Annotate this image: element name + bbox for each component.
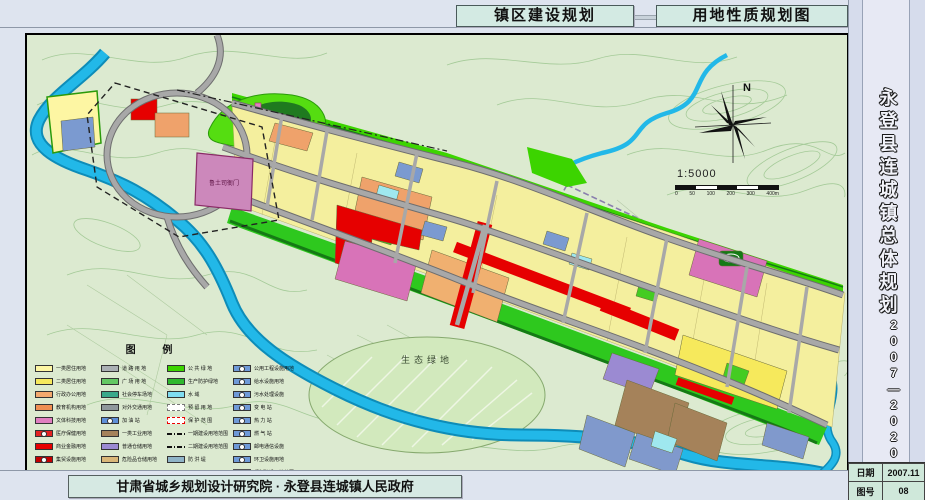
scale-tick: 50 bbox=[689, 191, 695, 197]
sheet-number-value: 08 bbox=[882, 482, 925, 500]
legend-swatch bbox=[35, 365, 53, 372]
legend-item: 邮电通信设施 bbox=[233, 440, 298, 453]
legend-swatch-symbol bbox=[239, 457, 245, 463]
scale-bar-ticks: 050100200300400m bbox=[675, 191, 779, 197]
legend-item-label: 生产防护绿地 bbox=[188, 378, 218, 385]
legend-item: 水 域 bbox=[167, 388, 232, 401]
legend-item-label: 二期建设用地范围 bbox=[188, 443, 228, 450]
legend-item: 给水设施用地 bbox=[233, 375, 298, 388]
legend-swatch-symbol bbox=[239, 366, 245, 372]
legend-item: 道 路 用 地 bbox=[101, 362, 166, 375]
legend-item-label: 燃 气 站 bbox=[254, 430, 272, 437]
sidebar: 永登县连城镇总体规划 2007—2020 bbox=[848, 0, 925, 500]
legend-item: 一类居住用地 bbox=[35, 362, 100, 375]
legend-item-label: 文体科技用地 bbox=[56, 417, 86, 424]
legend-item-label: 广 场 用 地 bbox=[122, 378, 146, 385]
legend-swatch bbox=[233, 456, 251, 463]
legend-swatch bbox=[35, 391, 53, 398]
legend-column: 一类居住用地二类居住用地行政办公用地教育机构用地文体科技用地医疗保健用地商业金融… bbox=[35, 362, 100, 479]
scale-tick: 100 bbox=[707, 191, 715, 197]
legend-item-label: 环卫设施用地 bbox=[254, 456, 284, 463]
scale-bar-segments bbox=[675, 185, 779, 190]
legend-item-label: 水 域 bbox=[188, 391, 199, 398]
legend-swatch bbox=[167, 404, 185, 411]
legend-swatch-symbol bbox=[41, 431, 47, 437]
legend-item-label: 预 留 用 地 bbox=[188, 404, 212, 411]
legend-swatch-symbol bbox=[239, 392, 245, 398]
plan-years: 2007—2020 bbox=[887, 318, 901, 462]
legend-swatch-symbol bbox=[239, 379, 245, 385]
legend-item: 预 留 用 地 bbox=[167, 401, 232, 414]
legend-item: 对外交通用地 bbox=[101, 401, 166, 414]
date-label: 日期 bbox=[848, 463, 882, 482]
legend-item: 二类居住用地 bbox=[35, 375, 100, 388]
legend-swatch bbox=[101, 365, 119, 372]
legend-swatch bbox=[101, 404, 119, 411]
legend: 图 例 一类居住用地二类居住用地行政办公用地教育机构用地文体科技用地医疗保健用地… bbox=[35, 341, 311, 479]
legend-item: 商业金融用地 bbox=[35, 440, 100, 453]
legend-item: 一类工业用地 bbox=[101, 427, 166, 440]
legend-item: 生产防护绿地 bbox=[167, 375, 232, 388]
legend-swatch-symbol bbox=[41, 457, 47, 463]
legend-item: 行政办公用地 bbox=[35, 388, 100, 401]
legend-item: 热 力 站 bbox=[233, 414, 298, 427]
date-value: 2007.11 bbox=[882, 463, 925, 482]
legend-item-label: 集贸设施用地 bbox=[56, 456, 86, 463]
legend-item: 防 洪 堤 bbox=[167, 453, 232, 466]
legend-swatch-symbol bbox=[107, 418, 113, 424]
legend-item: 公 共 绿 地 bbox=[167, 362, 232, 375]
legend-swatch bbox=[35, 443, 53, 450]
date-row: 日期 2007.11 bbox=[848, 463, 925, 482]
legend-item-label: 医疗保健用地 bbox=[56, 430, 86, 437]
legend-item-label: 公用工程设施用地 bbox=[254, 365, 294, 372]
legend-swatch bbox=[35, 378, 53, 385]
legend-item-label: 给水设施用地 bbox=[254, 378, 284, 385]
legend-item: 一期建设用地范围 bbox=[167, 427, 232, 440]
sheet-title-left: 镇区建设规划 bbox=[456, 5, 634, 27]
legend-item: 教育机构用地 bbox=[35, 401, 100, 414]
legend-item: 集贸设施用地 bbox=[35, 453, 100, 466]
legend-swatch bbox=[101, 443, 119, 450]
sheet-title-right: 用地性质规划图 bbox=[656, 5, 848, 27]
legend-swatch bbox=[167, 417, 185, 424]
legend-swatch bbox=[35, 404, 53, 411]
legend-item-label: 保 护 范 围 bbox=[188, 417, 212, 424]
legend-swatch bbox=[167, 443, 185, 450]
legend-item-label: 一期建设用地范围 bbox=[188, 430, 228, 437]
bottom-strip: 甘肃省城乡规划设计研究院 · 永登县连城镇人民政府 bbox=[0, 470, 848, 500]
legend-item-label: 邮电通信设施 bbox=[254, 443, 284, 450]
legend-swatch bbox=[233, 430, 251, 437]
legend-swatch-symbol bbox=[239, 431, 245, 437]
north-arrow: N bbox=[695, 82, 771, 163]
scale-bar: 050100200300400m bbox=[675, 185, 779, 197]
legend-item-label: 一类工业用地 bbox=[122, 430, 152, 437]
legend-item: 医疗保健用地 bbox=[35, 427, 100, 440]
legend-swatch bbox=[233, 378, 251, 385]
scale-tick: 200 bbox=[727, 191, 735, 197]
legend-column: 道 路 用 地广 场 用 地社会停车场地对外交通用地加 油 站一类工业用地普通仓… bbox=[101, 362, 166, 479]
legend-item-label: 变 电 站 bbox=[254, 404, 272, 411]
heritage-block: 鲁土司衙门 bbox=[195, 153, 253, 211]
legend-swatch bbox=[233, 443, 251, 450]
legend-item: 文体科技用地 bbox=[35, 414, 100, 427]
legend-swatch bbox=[167, 456, 185, 463]
legend-item-label: 道 路 用 地 bbox=[122, 365, 146, 372]
legend-item: 加 油 站 bbox=[101, 414, 166, 427]
legend-item-label: 危险品仓储用地 bbox=[122, 456, 157, 463]
sheet-number-label: 图号 bbox=[848, 482, 882, 500]
map-canvas: 鲁土司衙门 生态绿地 N 1:5000 图 例 一类居住用地二类居住用地行政办公 bbox=[25, 33, 849, 474]
legend-item: 公用工程设施用地 bbox=[233, 362, 298, 375]
legend-swatch bbox=[35, 430, 53, 437]
legend-item: 污水处理设施 bbox=[233, 388, 298, 401]
legend-swatch bbox=[35, 456, 53, 463]
legend-item-label: 教育机构用地 bbox=[56, 404, 86, 411]
legend-swatch bbox=[233, 417, 251, 424]
legend-item: 环卫设施用地 bbox=[233, 453, 298, 466]
plan-title-vertical: 永登县连城镇总体规划 bbox=[875, 88, 901, 318]
scale-tick: 400m bbox=[766, 191, 779, 197]
sheet-number-row: 图号 08 bbox=[848, 482, 925, 500]
legend-swatch bbox=[101, 456, 119, 463]
legend-item-label: 热 力 站 bbox=[254, 417, 272, 424]
plan-sheet: 镇区建设规划 用地性质规划图 bbox=[0, 0, 925, 500]
eco-green-label: 生态绿地 bbox=[401, 354, 453, 365]
legend-item: 普通仓储用地 bbox=[101, 440, 166, 453]
legend-swatch bbox=[101, 391, 119, 398]
legend-item-label: 公 共 绿 地 bbox=[188, 365, 212, 372]
legend-swatch-symbol bbox=[239, 418, 245, 424]
scale-tick: 0 bbox=[675, 191, 678, 197]
heritage-label: 鲁土司衙门 bbox=[209, 179, 239, 187]
legend-item-label: 一类居住用地 bbox=[56, 365, 86, 372]
legend-item: 变 电 站 bbox=[233, 401, 298, 414]
legend-swatch bbox=[101, 430, 119, 437]
legend-title: 图 例 bbox=[80, 341, 230, 356]
legend-swatch bbox=[167, 430, 185, 437]
legend-swatch bbox=[101, 417, 119, 424]
legend-item: 危险品仓储用地 bbox=[101, 453, 166, 466]
legend-swatch bbox=[101, 378, 119, 385]
legend-item: 广 场 用 地 bbox=[101, 375, 166, 388]
legend-item-label: 防 洪 堤 bbox=[188, 456, 206, 463]
legend-column: 公用工程设施用地给水设施用地污水处理设施变 电 站热 力 站燃 气 站邮电通信设… bbox=[233, 362, 298, 479]
legend-item-label: 加 油 站 bbox=[122, 417, 140, 424]
legend-item-label: 普通仓储用地 bbox=[122, 443, 152, 450]
legend-swatch bbox=[167, 391, 185, 398]
scale-text: 1:5000 bbox=[677, 168, 717, 180]
legend-swatch bbox=[167, 378, 185, 385]
legend-swatch-symbol bbox=[239, 405, 245, 411]
legend-item-label: 二类居住用地 bbox=[56, 378, 86, 385]
title-connector bbox=[632, 15, 658, 20]
legend-swatch bbox=[35, 417, 53, 424]
legend-item-label: 行政办公用地 bbox=[56, 391, 86, 398]
north-label: N bbox=[743, 82, 751, 94]
legend-swatch bbox=[233, 391, 251, 398]
scale-tick: 300 bbox=[746, 191, 754, 197]
legend-swatch bbox=[233, 404, 251, 411]
legend-item: 社会停车场地 bbox=[101, 388, 166, 401]
title-block-table: 日期 2007.11 图号 08 bbox=[848, 462, 925, 500]
legend-swatch-symbol bbox=[239, 444, 245, 450]
legend-swatch bbox=[233, 365, 251, 372]
legend-column: 公 共 绿 地生产防护绿地水 域预 留 用 地保 护 范 围一期建设用地范围二期… bbox=[167, 362, 232, 479]
legend-item: 燃 气 站 bbox=[233, 427, 298, 440]
legend-item: 二期建设用地范围 bbox=[167, 440, 232, 453]
legend-item-label: 商业金融用地 bbox=[56, 443, 86, 450]
legend-item-label: 污水处理设施 bbox=[254, 391, 284, 398]
legend-item: 保 护 范 围 bbox=[167, 414, 232, 427]
legend-swatch bbox=[167, 365, 185, 372]
legend-item-label: 对外交通用地 bbox=[122, 404, 152, 411]
credit-box: 甘肃省城乡规划设计研究院 · 永登县连城镇人民政府 bbox=[68, 475, 462, 498]
legend-item-label: 社会停车场地 bbox=[122, 391, 152, 398]
